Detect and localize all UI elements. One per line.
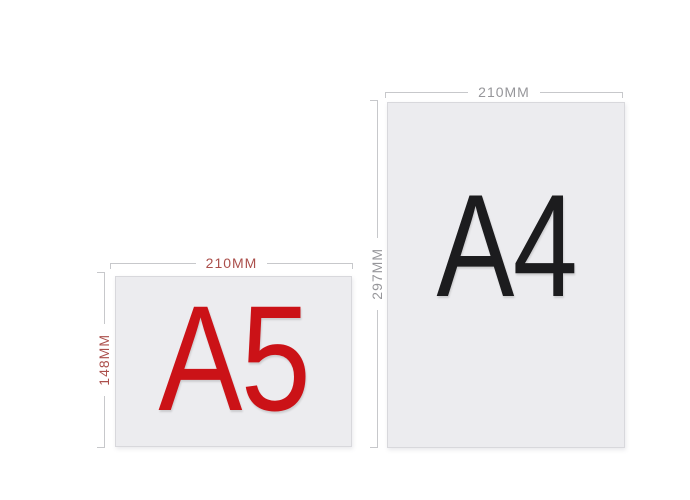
dimension-line-segment bbox=[377, 100, 378, 238]
a5-height-label: 148MM bbox=[96, 324, 112, 396]
dimension-tick bbox=[370, 100, 377, 101]
a4-width-dimension: 210MM bbox=[385, 85, 623, 99]
dimension-line-segment bbox=[110, 263, 196, 264]
a5-height-dimension: 148MM bbox=[97, 272, 111, 448]
a4-width-label: 210MM bbox=[468, 85, 540, 99]
dimension-tick bbox=[97, 447, 104, 448]
a5-width-dimension: 210MM bbox=[110, 256, 353, 270]
dimension-line-segment bbox=[104, 272, 105, 324]
dimension-line-segment bbox=[385, 92, 468, 93]
a4-height-dimension: 297MM bbox=[370, 100, 384, 448]
dimension-tick bbox=[352, 263, 353, 269]
dimension-tick bbox=[622, 92, 623, 98]
a4-size-label: A4 bbox=[436, 173, 576, 319]
dimension-line-segment bbox=[540, 92, 623, 93]
dimension-tick bbox=[370, 447, 377, 448]
a5-paper-sheet: A5 bbox=[115, 276, 352, 447]
a5-size-label: A5 bbox=[158, 283, 309, 433]
dimension-tick bbox=[97, 272, 104, 273]
dimension-line-segment bbox=[104, 396, 105, 448]
dimension-line-segment bbox=[377, 310, 378, 448]
paper-size-comparison-diagram: 210MM 148MM A5 210MM 297MM A4 bbox=[0, 0, 690, 500]
dimension-tick bbox=[110, 263, 111, 269]
a5-width-label: 210MM bbox=[196, 256, 268, 270]
a4-paper-sheet: A4 bbox=[387, 102, 625, 448]
dimension-line-segment bbox=[267, 263, 353, 264]
a4-height-label: 297MM bbox=[369, 238, 385, 310]
dimension-tick bbox=[385, 92, 386, 98]
